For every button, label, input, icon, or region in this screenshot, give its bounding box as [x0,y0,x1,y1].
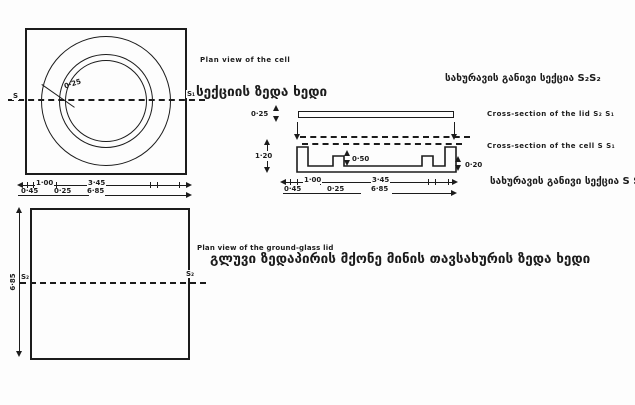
dim-label-3-45: 3·45 [371,176,390,184]
dimension-line [267,145,268,151]
caption-plan-view-lid-ka: გლუვი ზედაპირის მქონე მინის თავსახურის ზ… [210,251,590,267]
ridge-dim-label: 0·50 [352,155,369,163]
caption-cell-section-ka: სახურავის განივი სექცია S S₁ [490,176,635,188]
arrowhead [16,351,22,357]
lid-height-dim-label: 6·85 [9,262,17,302]
dim-label-1-00: 1·00 [303,176,322,184]
arrowhead [16,207,22,213]
tick-mark [428,179,429,185]
cell-height-dim-label: 1·20 [255,152,272,160]
tick-mark [448,179,449,185]
arrowhead [344,160,350,166]
dim-label-6-85: 6·85 [371,185,388,193]
dim-label-0-25: 0·25 [327,185,344,193]
cell-profile-path [297,147,456,172]
arrowhead [451,190,457,196]
arrowhead [264,167,270,173]
arrowhead [344,150,350,156]
scanned-technical-drawing: S S₁ 0·25 1·00 3·45 0·45 0·25 6·85 Plan … [0,0,635,405]
section-label-s2-left: S₂ [20,273,30,281]
lid-plan-outline [30,208,190,360]
arrowhead [455,156,461,162]
section-line-s2-s2 [20,282,206,284]
arrowhead [455,165,461,171]
tick-mark [435,179,436,185]
caption-cell-section-en: Cross-section of the cell S S₁ [487,142,615,151]
dimension-line [392,193,454,194]
dimension-line [283,193,361,194]
base-thickness-dim-label: 0·20 [465,161,482,169]
arrowhead [452,179,458,185]
dim-label-0-45: 0·45 [284,185,301,193]
section-label-s2-right: S₂ [185,270,195,278]
